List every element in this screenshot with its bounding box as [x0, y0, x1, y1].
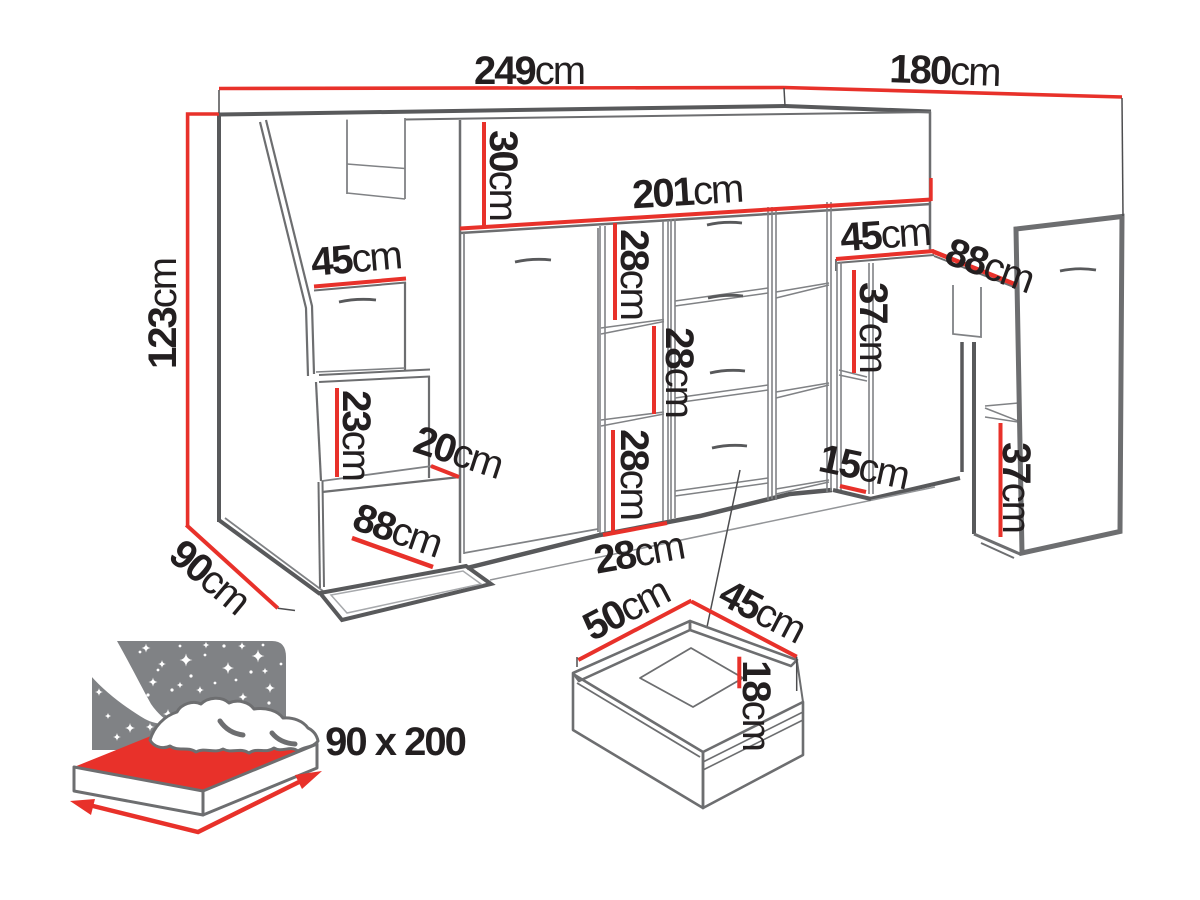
- svg-text:123cm: 123cm: [141, 259, 185, 369]
- svg-text:30cm: 30cm: [481, 130, 525, 220]
- svg-text:28cm: 28cm: [657, 327, 701, 417]
- svg-text:45cm: 45cm: [839, 210, 932, 260]
- svg-text:88cm: 88cm: [940, 230, 1039, 302]
- svg-text:18cm: 18cm: [734, 660, 778, 750]
- svg-text:23cm: 23cm: [334, 390, 378, 480]
- svg-text:249cm: 249cm: [474, 49, 584, 93]
- svg-text:201cm: 201cm: [631, 167, 744, 218]
- svg-text:28cm: 28cm: [612, 229, 656, 319]
- svg-text:28cm: 28cm: [612, 429, 656, 519]
- svg-text:37cm: 37cm: [851, 282, 895, 372]
- svg-text:37cm: 37cm: [994, 442, 1038, 532]
- svg-text:90 x 200: 90 x 200: [325, 720, 465, 764]
- svg-text:45cm: 45cm: [309, 233, 402, 285]
- svg-text:50cm: 50cm: [576, 569, 676, 650]
- svg-text:180cm: 180cm: [889, 47, 1001, 95]
